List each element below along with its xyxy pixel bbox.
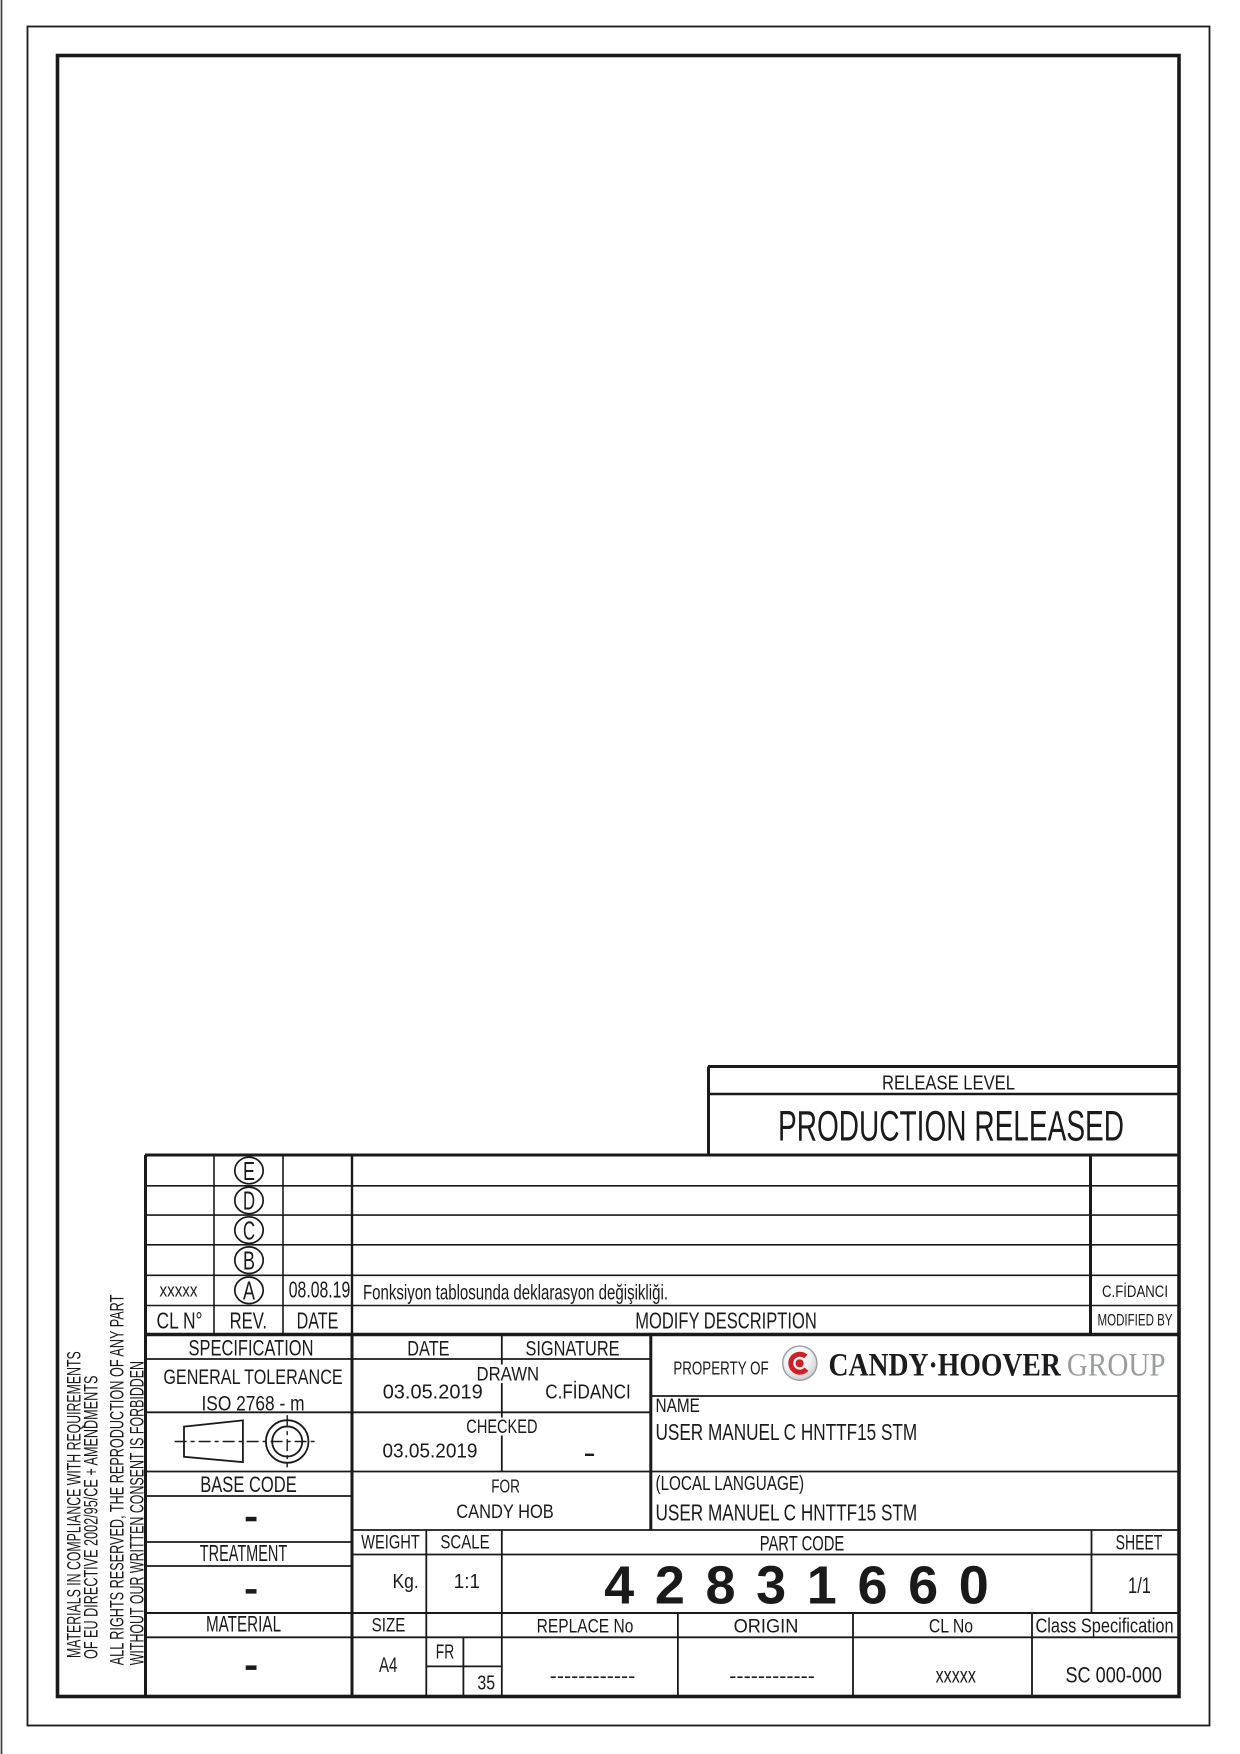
svg-text:WEIGHT: WEIGHT bbox=[361, 1533, 420, 1554]
svg-text:03.05.2019: 03.05.2019 bbox=[383, 1382, 483, 1404]
svg-text:FR: FR bbox=[436, 1641, 454, 1663]
svg-text:SPECIFICATION: SPECIFICATION bbox=[189, 1336, 314, 1361]
svg-text:A4: A4 bbox=[379, 1654, 398, 1677]
svg-text:OF EU DIRECTIVE 2002/95/CE + A: OF EU DIRECTIVE 2002/95/CE + AMENDMENTS bbox=[82, 1376, 103, 1659]
svg-text:A: A bbox=[243, 1276, 255, 1306]
svg-text:REV.: REV. bbox=[230, 1307, 267, 1333]
svg-text:CL N°: CL N° bbox=[157, 1307, 203, 1333]
svg-text:PROPERTY OF: PROPERTY OF bbox=[673, 1358, 768, 1378]
svg-text:SIZE: SIZE bbox=[372, 1616, 406, 1637]
svg-text:Kg.: Kg. bbox=[392, 1571, 418, 1593]
svg-text:B: B bbox=[243, 1246, 255, 1276]
svg-text:TREATMENT: TREATMENT bbox=[200, 1540, 287, 1566]
svg-text:GENERAL TOLERANCE: GENERAL TOLERANCE bbox=[163, 1366, 342, 1389]
svg-text:MODIFIED BY: MODIFIED BY bbox=[1098, 1311, 1173, 1330]
svg-text:RELEASE LEVEL: RELEASE LEVEL bbox=[882, 1073, 1015, 1095]
svg-text:E: E bbox=[243, 1156, 255, 1186]
svg-text:PART CODE: PART CODE bbox=[760, 1533, 845, 1556]
svg-text:NAME: NAME bbox=[656, 1396, 700, 1417]
svg-text:CANDY HOB: CANDY HOB bbox=[456, 1502, 554, 1523]
svg-text:ISO 2768 - m: ISO 2768 - m bbox=[202, 1393, 305, 1416]
svg-text:xxxxx: xxxxx bbox=[160, 1281, 198, 1301]
svg-text:SC 000-000: SC 000-000 bbox=[1066, 1663, 1163, 1688]
svg-text:------------: ------------ bbox=[729, 1666, 815, 1688]
svg-text:1/1: 1/1 bbox=[1128, 1573, 1151, 1598]
svg-text:08.08.19: 08.08.19 bbox=[289, 1277, 351, 1303]
svg-text:SHEET: SHEET bbox=[1116, 1532, 1163, 1555]
svg-text:CANDY·HOOVER: CANDY·HOOVER bbox=[829, 1347, 1062, 1383]
svg-text:SCALE: SCALE bbox=[440, 1533, 489, 1554]
svg-text:------------: ------------ bbox=[550, 1666, 636, 1688]
svg-text:FOR: FOR bbox=[491, 1477, 520, 1497]
svg-text:D: D bbox=[243, 1186, 255, 1216]
svg-text:4 2 8 3 1 6 6 0: 4 2 8 3 1 6 6 0 bbox=[604, 1556, 989, 1616]
svg-text:(LOCAL LANGUAGE): (LOCAL LANGUAGE) bbox=[656, 1473, 805, 1495]
svg-text:35: 35 bbox=[477, 1672, 495, 1694]
svg-text:BASE CODE: BASE CODE bbox=[200, 1472, 297, 1497]
svg-text:ALL RIGHTS RESERVED, THE REPRO: ALL RIGHTS RESERVED, THE REPRODUCTION OF… bbox=[108, 1294, 129, 1665]
svg-text:Class Specification: Class Specification bbox=[1035, 1615, 1173, 1637]
svg-text:CHECKED: CHECKED bbox=[466, 1417, 537, 1438]
svg-text:C.FİDANCI: C.FİDANCI bbox=[545, 1381, 630, 1404]
svg-text:1:1: 1:1 bbox=[454, 1571, 480, 1593]
svg-text:REPLACE No: REPLACE No bbox=[537, 1616, 634, 1637]
svg-text:xxxxx: xxxxx bbox=[936, 1665, 977, 1688]
svg-text:DATE: DATE bbox=[297, 1307, 339, 1333]
svg-text:USER MANUEL C HNTTF15 STM: USER MANUEL C HNTTF15 STM bbox=[656, 1419, 918, 1445]
svg-text:DRAWN: DRAWN bbox=[477, 1365, 540, 1386]
svg-text:C: C bbox=[243, 1215, 255, 1245]
svg-text:ORIGIN: ORIGIN bbox=[734, 1616, 799, 1637]
svg-text:MATERIAL: MATERIAL bbox=[206, 1612, 281, 1637]
svg-text:Fonksiyon tablosunda deklarasy: Fonksiyon tablosunda deklarasyon değişik… bbox=[363, 1282, 668, 1305]
svg-text:GROUP: GROUP bbox=[1067, 1347, 1166, 1383]
svg-text:CL No: CL No bbox=[929, 1616, 973, 1637]
svg-text:USER MANUEL C HNTTF15 STM: USER MANUEL C HNTTF15 STM bbox=[656, 1500, 918, 1526]
svg-text:C.FİDANCI: C.FİDANCI bbox=[1102, 1282, 1168, 1301]
svg-text:03.05.2019: 03.05.2019 bbox=[383, 1441, 478, 1463]
svg-text:WITHOUT OUR WRITTEN CONSENT IS: WITHOUT OUR WRITTEN CONSENT IS FORBIDDEN bbox=[128, 1361, 149, 1665]
svg-text:MODIFY DESCRIPTION: MODIFY DESCRIPTION bbox=[635, 1307, 817, 1333]
svg-text:DATE: DATE bbox=[407, 1338, 449, 1361]
svg-text:SIGNATURE: SIGNATURE bbox=[525, 1338, 619, 1361]
svg-text:PRODUCTION RELEASED: PRODUCTION RELEASED bbox=[778, 1103, 1124, 1151]
